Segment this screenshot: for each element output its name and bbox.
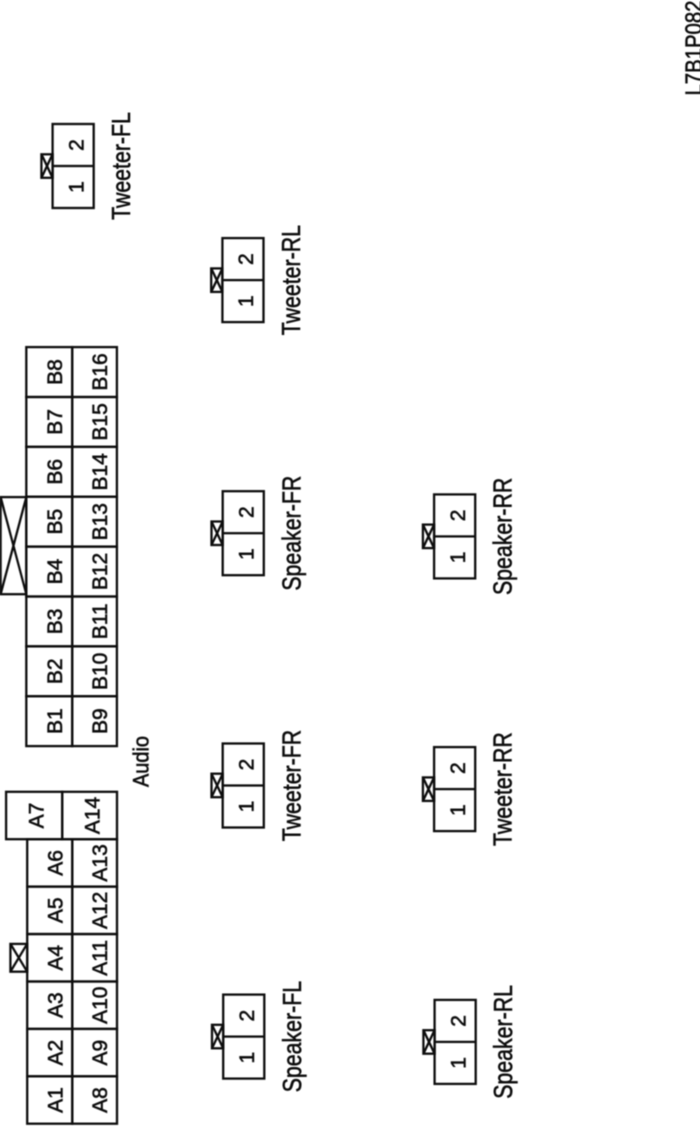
svg-text:1: 1 <box>236 548 259 560</box>
svg-text:B16: B16 <box>89 353 112 390</box>
svg-text:A13: A13 <box>89 844 112 881</box>
svg-text:A11: A11 <box>89 940 112 976</box>
svg-text:1: 1 <box>447 1057 470 1069</box>
svg-text:B10: B10 <box>89 653 112 690</box>
svg-text:B4: B4 <box>44 558 67 584</box>
svg-text:B8: B8 <box>44 359 67 385</box>
svg-text:1: 1 <box>447 804 470 816</box>
svg-text:1: 1 <box>236 801 259 813</box>
svg-text:B3: B3 <box>44 609 67 635</box>
svg-text:A6: A6 <box>44 850 67 876</box>
svg-text:Speaker-FL: Speaker-FL <box>277 981 307 1092</box>
svg-text:2: 2 <box>447 1015 470 1027</box>
svg-text:A2: A2 <box>44 1040 67 1066</box>
svg-text:Speaker-FR: Speaker-FR <box>276 476 306 591</box>
svg-text:B13: B13 <box>89 503 112 540</box>
svg-text:2: 2 <box>236 759 259 771</box>
svg-text:A10: A10 <box>89 987 112 1024</box>
svg-text:1: 1 <box>235 295 258 307</box>
svg-text:B12: B12 <box>89 553 112 590</box>
svg-text:1: 1 <box>236 1052 259 1064</box>
svg-text:2: 2 <box>447 510 470 522</box>
svg-text:Tweeter-FR: Tweeter-FR <box>276 730 306 841</box>
svg-text:2: 2 <box>65 139 88 151</box>
svg-text:A1: A1 <box>44 1087 67 1113</box>
svg-text:B1: B1 <box>44 708 67 734</box>
svg-text:Tweeter-FL: Tweeter-FL <box>106 112 136 220</box>
svg-text:A7: A7 <box>26 803 49 829</box>
svg-text:B7: B7 <box>44 409 67 435</box>
svg-text:Tweeter-RR: Tweeter-RR <box>488 732 518 846</box>
svg-text:Speaker-RL: Speaker-RL <box>488 985 518 1099</box>
svg-text:B15: B15 <box>89 403 112 440</box>
svg-text:B9: B9 <box>89 708 112 734</box>
svg-text:B11: B11 <box>89 603 112 639</box>
svg-text:A3: A3 <box>44 992 67 1018</box>
svg-text:1: 1 <box>447 552 470 564</box>
svg-text:L7B1P082: L7B1P082 <box>681 1 700 96</box>
svg-text:A12: A12 <box>89 892 112 929</box>
svg-text:B6: B6 <box>44 459 67 485</box>
svg-text:A4: A4 <box>44 945 67 971</box>
svg-text:B2: B2 <box>44 658 67 684</box>
svg-text:A14: A14 <box>82 797 105 835</box>
svg-text:1: 1 <box>65 181 88 193</box>
svg-text:2: 2 <box>235 253 258 265</box>
svg-text:2: 2 <box>236 1010 259 1022</box>
svg-text:Audio: Audio <box>129 736 154 787</box>
svg-text:A5: A5 <box>44 897 67 923</box>
svg-text:A9: A9 <box>89 1040 112 1066</box>
svg-text:2: 2 <box>236 506 259 518</box>
svg-text:2: 2 <box>447 762 470 774</box>
svg-text:B14: B14 <box>89 453 112 491</box>
svg-text:A8: A8 <box>89 1087 112 1113</box>
svg-text:Tweeter-RL: Tweeter-RL <box>276 225 306 335</box>
svg-text:Speaker-RR: Speaker-RR <box>488 478 518 595</box>
svg-text:B5: B5 <box>44 509 67 535</box>
